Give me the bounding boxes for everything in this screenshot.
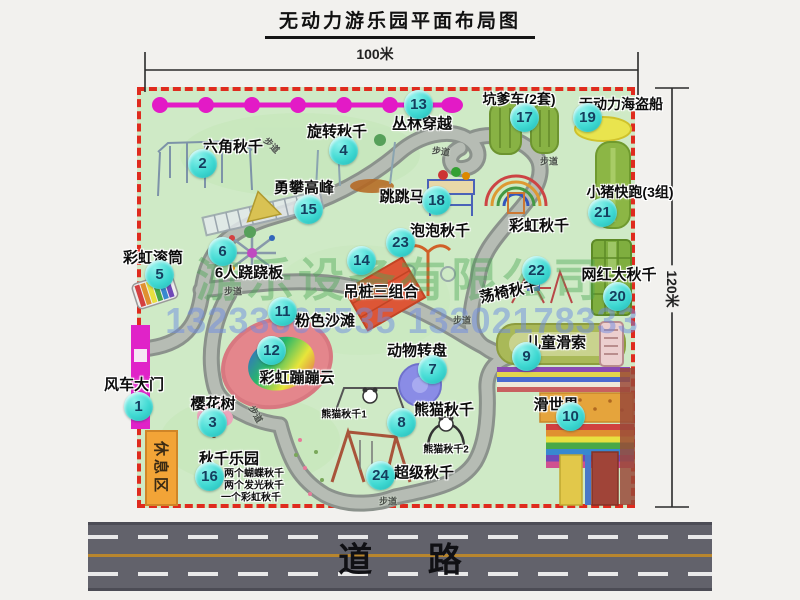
extra-label-2: 熊猫秋千2 xyxy=(423,441,469,456)
walkway-label-2: 步道 xyxy=(540,155,558,168)
road-label: 道 路 xyxy=(338,532,461,581)
road-edge-top xyxy=(88,522,712,525)
attraction-badge-8: 8 xyxy=(387,408,416,437)
road-edge-bottom xyxy=(88,588,712,591)
attraction-label-12: 彩虹蹦蹦云 xyxy=(259,367,334,388)
attraction-badge-1: 1 xyxy=(124,392,153,421)
attraction-badge-2: 2 xyxy=(188,149,217,178)
attraction-label-24: 超级秋千 xyxy=(394,462,454,483)
width-dimension-label: 100米 xyxy=(356,44,393,64)
attraction-badge-9: 9 xyxy=(512,342,541,371)
height-dimension-label: 120米 xyxy=(661,265,683,312)
attraction-label-1: 风车大门 xyxy=(104,374,164,395)
attraction-label-23: 泡泡秋千 xyxy=(410,220,470,241)
attraction-badge-13: 13 xyxy=(404,90,433,119)
attraction-badge-19: 19 xyxy=(573,103,602,132)
attraction-badge-16: 16 xyxy=(195,462,224,491)
attraction-badge-6: 6 xyxy=(208,237,237,266)
attraction-badge-14: 14 xyxy=(347,246,376,275)
attraction-label-14: 吊桩三组合 xyxy=(343,281,418,302)
attraction-badge-4: 4 xyxy=(329,136,358,165)
walkway-label-4: 步道 xyxy=(453,314,471,327)
attraction-label-8: 熊猫秋千 xyxy=(414,399,474,420)
extra-label-1: 熊猫秋千1 xyxy=(321,406,367,421)
attraction-badge-10: 10 xyxy=(556,402,585,431)
attraction-badge-3: 3 xyxy=(198,408,227,437)
attraction-badge-11: 11 xyxy=(268,297,297,326)
attraction-badge-24: 24 xyxy=(366,461,395,490)
attraction-badge-7: 7 xyxy=(418,355,447,384)
park-layout-poster: 无动力游乐园平面布局图 100米 120米 xyxy=(0,0,800,600)
extra-label-0: 彩虹秋千 xyxy=(509,215,569,236)
walkway-label-5: 步道 xyxy=(246,403,266,425)
attraction-badge-15: 15 xyxy=(294,195,323,224)
extra-label-5: 一个彩虹秋千 xyxy=(221,489,281,504)
attraction-badge-12: 12 xyxy=(257,336,286,365)
attraction-badge-18: 18 xyxy=(422,186,451,215)
road: 道 路 xyxy=(88,522,712,591)
walkway-label-6: 步道 xyxy=(379,495,397,508)
walkway-label-1: 步道 xyxy=(431,143,451,158)
attraction-badge-20: 20 xyxy=(603,282,632,311)
page-title: 无动力游乐园平面布局图 xyxy=(265,6,535,39)
walkway-label-3: 步道 xyxy=(224,285,242,298)
attraction-label-11: 粉色沙滩 xyxy=(295,310,355,331)
attraction-badge-23: 23 xyxy=(386,228,415,257)
attraction-badge-22: 22 xyxy=(522,256,551,285)
attraction-badge-17: 17 xyxy=(510,103,539,132)
attraction-badge-21: 21 xyxy=(588,198,617,227)
walkway-label-0: 步道 xyxy=(261,134,283,156)
attraction-label-15: 勇攀高峰 xyxy=(274,177,334,198)
attraction-label-18: 跳跳马 xyxy=(379,186,424,207)
attraction-badge-5: 5 xyxy=(145,260,174,289)
